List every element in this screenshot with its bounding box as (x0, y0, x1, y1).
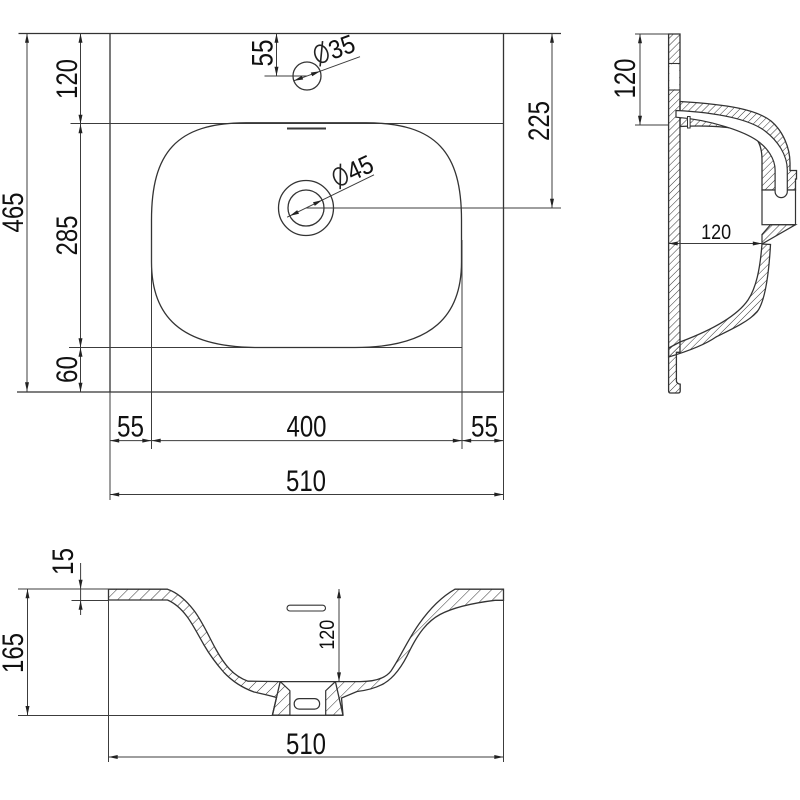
svg-text:120: 120 (51, 59, 84, 99)
svg-text:510: 510 (286, 728, 326, 761)
svg-text:120: 120 (316, 620, 339, 650)
svg-text:55: 55 (471, 411, 498, 444)
svg-text:285: 285 (51, 216, 84, 256)
svg-text:465: 465 (0, 193, 30, 233)
svg-text:165: 165 (0, 633, 30, 673)
svg-text:225: 225 (523, 101, 556, 141)
svg-text:55: 55 (117, 411, 144, 444)
svg-text:120: 120 (609, 59, 642, 99)
svg-text:55: 55 (247, 40, 280, 67)
svg-text:510: 510 (286, 465, 326, 498)
svg-text:60: 60 (51, 356, 84, 383)
svg-text:400: 400 (287, 411, 327, 444)
svg-text:15: 15 (47, 548, 80, 575)
svg-text:120: 120 (701, 221, 731, 244)
